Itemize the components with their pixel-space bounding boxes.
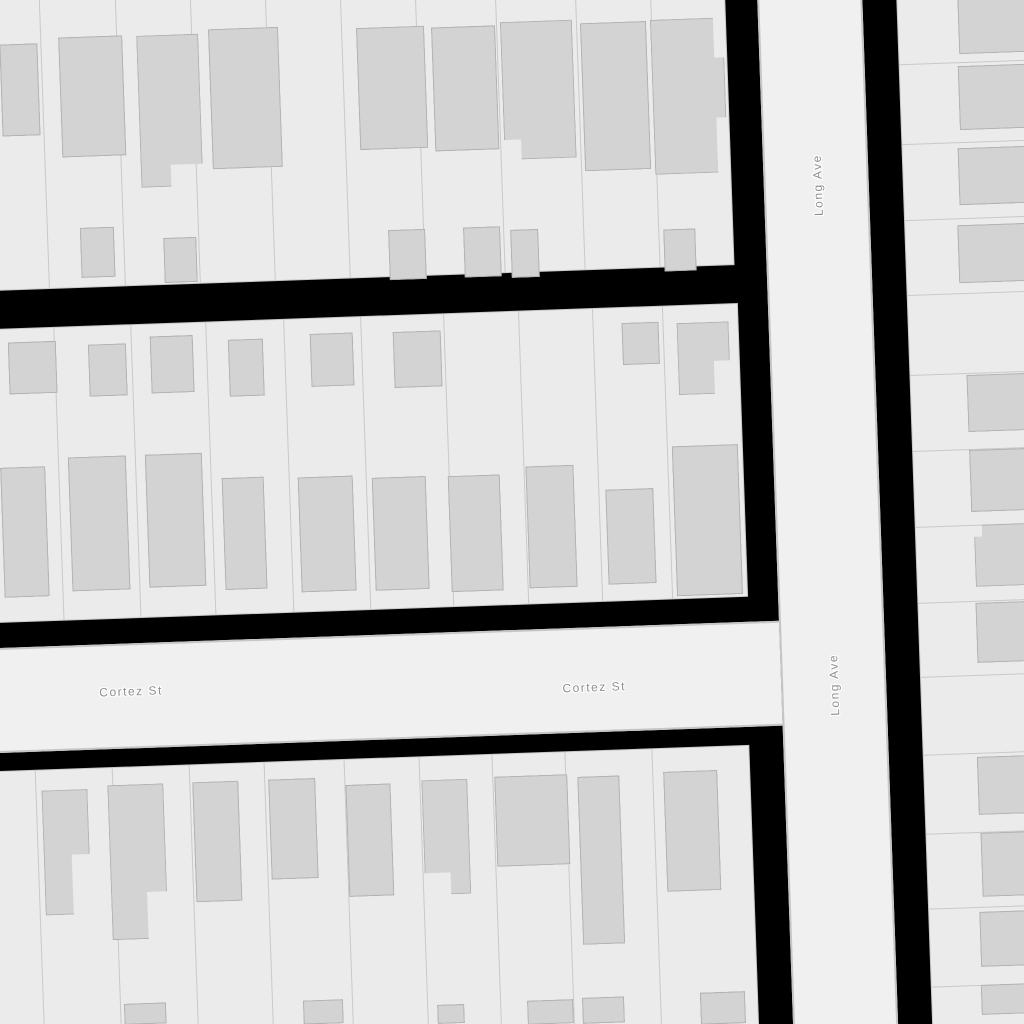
- building-footprint: [388, 229, 427, 280]
- building-footprint: [0, 466, 50, 597]
- parcel-boundary-line: [592, 309, 603, 601]
- building-footprint: [431, 25, 499, 151]
- building-footprint: [310, 332, 355, 386]
- street-label-cortez-st-left: Cortez St: [99, 683, 163, 699]
- building-footprint: [510, 229, 540, 278]
- building-footprint: [969, 447, 1024, 512]
- parcel-boundary-line: [921, 668, 1024, 678]
- block-bottom-left: [0, 746, 763, 1024]
- building-footprint: [621, 322, 659, 365]
- building-footprint: [577, 775, 625, 944]
- building-footprint: [663, 228, 696, 271]
- building-footprint: [663, 770, 721, 892]
- building-footprint: [494, 774, 570, 866]
- building-footprint: [525, 465, 577, 589]
- building-footprint: [979, 909, 1024, 967]
- building-footprint: [580, 21, 651, 171]
- building-footprint: [980, 830, 1024, 897]
- building-footprint: [700, 991, 746, 1024]
- parcel-boundary-line: [283, 320, 294, 612]
- building-footprint: [448, 474, 504, 592]
- parcel-boundary-line: [908, 286, 1024, 296]
- building-footprint: [345, 783, 394, 897]
- building-footprint: [672, 444, 743, 596]
- building-footprint: [437, 1004, 465, 1024]
- building-footprint: [222, 477, 268, 590]
- building-footprint: [228, 339, 265, 397]
- street-label-cortez-st-right: Cortez St: [562, 679, 626, 695]
- building-footprint: [957, 222, 1024, 283]
- building-footprint: [68, 455, 131, 591]
- building-footprint: [527, 999, 574, 1024]
- parcel-boundary-line: [929, 900, 1024, 910]
- parcel-boundary-line: [902, 136, 1024, 146]
- building-footprint: [163, 237, 198, 283]
- parcel-boundary-line: [924, 746, 1024, 756]
- building-footprint: [500, 20, 577, 160]
- building-footprint: [966, 372, 1024, 432]
- building-footprint: [650, 17, 728, 174]
- building-footprint: [136, 34, 203, 188]
- building-footprint: [58, 35, 126, 157]
- parcel-boundary-line: [518, 312, 529, 604]
- building-footprint: [957, 0, 1024, 54]
- building-footprint: [150, 335, 195, 393]
- street-label-long-ave-top: Long Ave: [810, 154, 826, 216]
- building-footprint: [124, 1002, 167, 1024]
- parcel-boundary-line: [905, 211, 1024, 221]
- parcel-boundary-line: [360, 317, 371, 609]
- building-footprint: [463, 226, 502, 277]
- building-footprint: [303, 999, 344, 1024]
- building-footprint: [974, 522, 1024, 587]
- building-footprint: [975, 600, 1024, 663]
- building-footprint: [80, 227, 116, 278]
- building-footprint: [356, 26, 428, 150]
- building-footprint: [372, 476, 430, 591]
- building-footprint: [958, 63, 1024, 130]
- block-right: [892, 0, 1024, 1024]
- building-footprint: [977, 754, 1024, 815]
- building-footprint: [0, 43, 41, 136]
- building-footprint: [192, 781, 242, 903]
- map-rotated-layer: Cortez St Cortez St Long Ave Long Ave: [0, 0, 1024, 1024]
- building-footprint: [41, 789, 91, 916]
- building-footprint: [268, 778, 318, 880]
- building-footprint: [958, 145, 1024, 205]
- building-footprint: [208, 27, 283, 169]
- building-footprint: [145, 453, 207, 588]
- road-long-ave: [752, 0, 903, 1024]
- parcel-boundary-line: [335, 0, 350, 278]
- building-footprint: [421, 779, 471, 896]
- building-footprint: [981, 982, 1024, 1015]
- block-middle-left: [0, 304, 747, 627]
- building-footprint: [605, 488, 656, 585]
- map-viewport[interactable]: Cortez St Cortez St Long Ave Long Ave: [0, 0, 1024, 1024]
- building-footprint: [298, 476, 357, 593]
- building-footprint: [8, 341, 58, 395]
- parcel-boundary-line: [130, 325, 141, 617]
- building-footprint: [88, 343, 128, 396]
- parcel-boundary-line: [205, 323, 216, 615]
- building-footprint: [677, 321, 731, 395]
- street-label-long-ave-bottom: Long Ave: [826, 654, 842, 716]
- building-footprint: [582, 996, 625, 1023]
- building-footprint: [393, 330, 443, 388]
- building-footprint: [107, 783, 168, 940]
- block-top-left: [0, 0, 733, 295]
